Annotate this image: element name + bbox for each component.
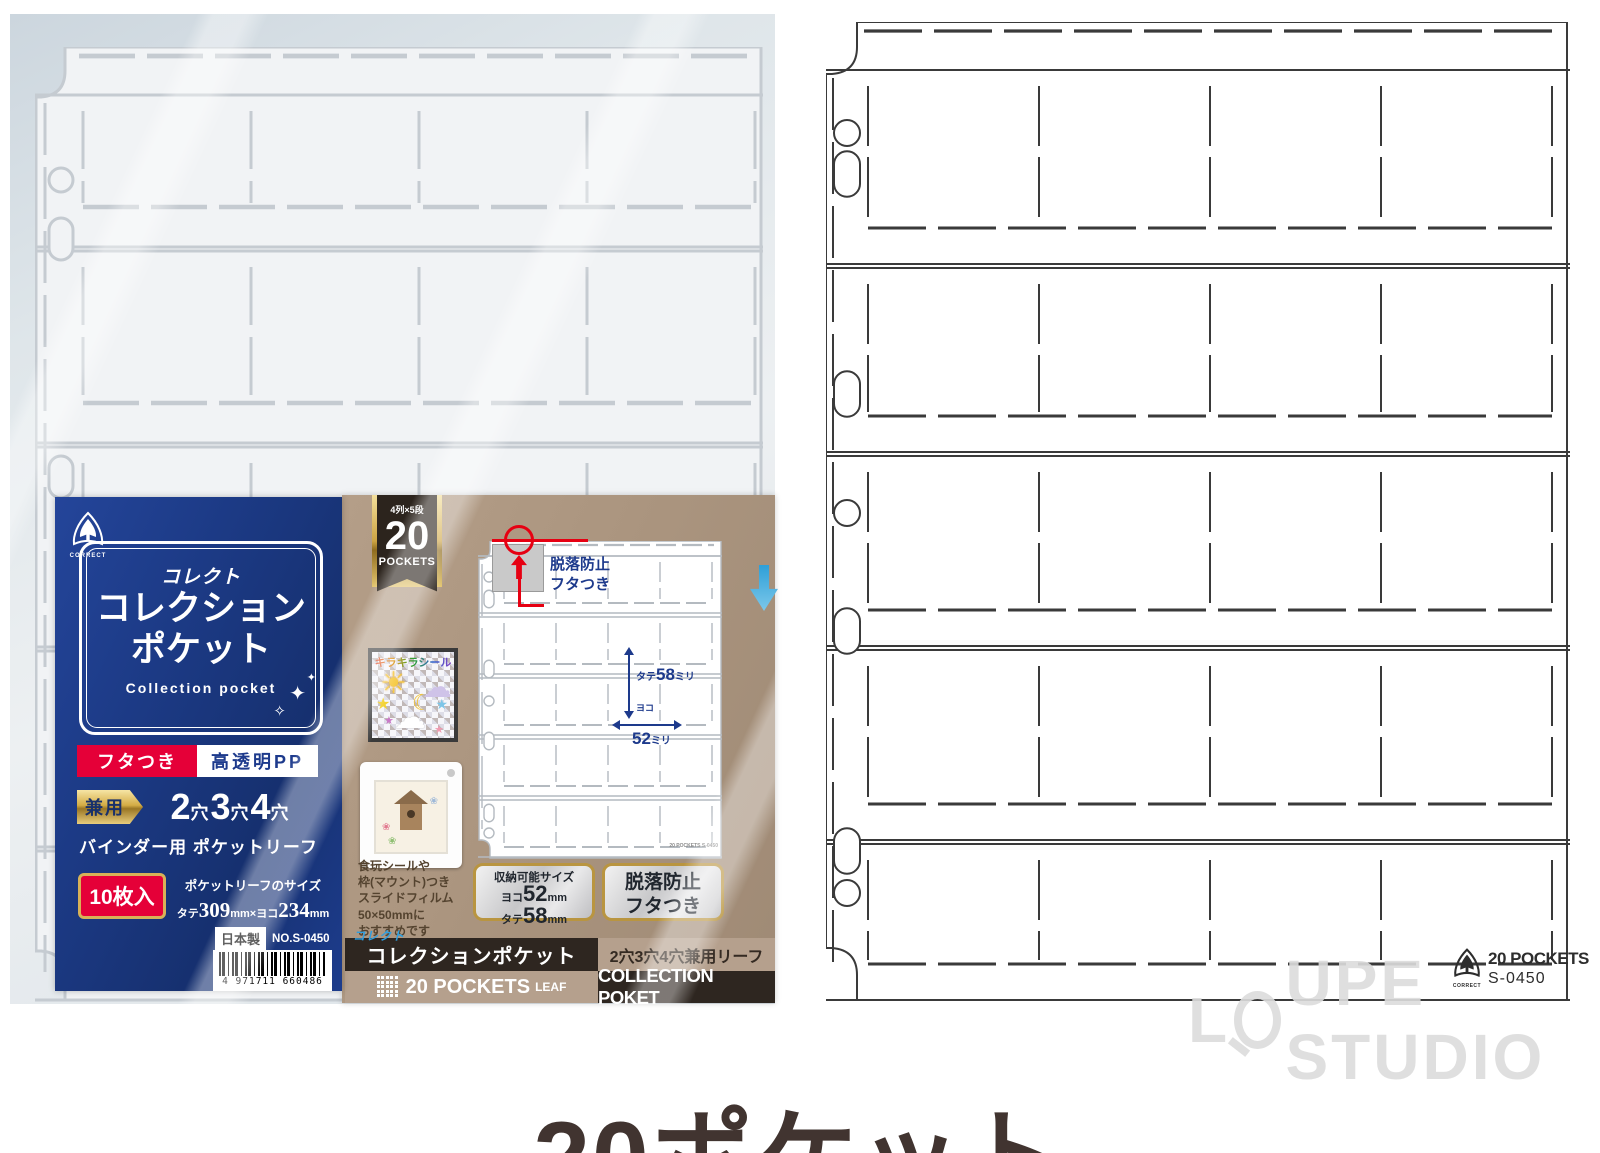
arrow-right-icon bbox=[674, 720, 682, 730]
ribbon-pockets-text: POCKETS bbox=[377, 556, 437, 568]
combo-arrow-badge: 兼用 bbox=[77, 790, 143, 824]
barcode-bars bbox=[219, 952, 326, 976]
page-caption: 20ポケット bbox=[533, 1076, 1066, 1153]
hole-count-4: 4 bbox=[251, 786, 271, 827]
product-title-en: Collection pocket bbox=[82, 680, 320, 696]
diagram-red-leader bbox=[518, 579, 521, 607]
flower-icon: ❀ bbox=[382, 822, 390, 833]
ribbon-body: 4列×5段 20 POCKETS bbox=[377, 495, 437, 607]
diagram-corner-text: 20 POCKETS S-0450 bbox=[669, 843, 718, 849]
dim-horizontal-label-top: ヨコ bbox=[636, 701, 654, 714]
dim-horizontal-label: 52ミリ bbox=[632, 729, 671, 749]
insert-arrow-icon bbox=[750, 565, 778, 611]
footer-leaf-text: LEAF bbox=[535, 980, 566, 994]
leaf-icon: ❀ bbox=[388, 836, 396, 847]
birdhouse-roof bbox=[394, 790, 428, 804]
hole-unit: 穴 bbox=[231, 803, 249, 823]
flower-icon: ❀ bbox=[430, 796, 438, 807]
hole-unit: 穴 bbox=[271, 803, 289, 823]
anti-drop-badge: 脱落防止 フタつき bbox=[602, 863, 724, 921]
footer-brand-script: コレクト bbox=[353, 927, 405, 944]
hole-count-2: 2 bbox=[170, 786, 190, 827]
hole-compatibility: 兼用 2穴3穴4穴 bbox=[77, 787, 318, 827]
slide-mount-image: ❀ ❀ ❀ bbox=[360, 762, 462, 868]
mount-artwork: ❀ ❀ ❀ bbox=[374, 780, 448, 854]
star-icon: ★ bbox=[376, 694, 390, 714]
star-icon: ★ bbox=[434, 723, 444, 736]
footer-product-bar: コレクト コレクションポケット bbox=[345, 938, 598, 971]
package-label-blue-panel: CORRECT コレクト コレクション ポケット Collection pock… bbox=[55, 497, 342, 991]
model-number: NO.S-0450 bbox=[272, 933, 330, 945]
package-label-tan-panel: 4列×5段 20 POCKETS キラキラシール ☀ ☁ ☾ ☁ ★ ★ ★ ★ bbox=[342, 495, 775, 1003]
brand-script: コレクト bbox=[82, 562, 320, 589]
star-icon: ★ bbox=[435, 696, 448, 713]
birdhouse-hole bbox=[407, 810, 415, 818]
leaf-size-caption: ポケットリーフのサイズ bbox=[173, 875, 333, 894]
sheet-count-badge: 10枚入 bbox=[78, 873, 166, 919]
arrow-down-icon bbox=[624, 711, 634, 719]
footer-english-bar: COLLECTION POKET bbox=[598, 971, 775, 1003]
mount-dot bbox=[447, 769, 455, 777]
pocket-diagram: 脱落防止 フタつき タテ58ミリ ヨコ 52ミリ 20 POCKETS S-04… bbox=[478, 541, 722, 859]
product-title-line1: コレクション bbox=[82, 588, 320, 629]
diagram-red-leader bbox=[518, 604, 544, 607]
hole-unit: 穴 bbox=[190, 803, 208, 823]
barcode-digits: 4 971711 660486 bbox=[219, 976, 326, 987]
product-subtitle: バインダー用 ポケットリーフ bbox=[55, 833, 342, 858]
holo-sticker-image: キラキラシール ☀ ☁ ☾ ☁ ★ ★ ★ ★ bbox=[368, 648, 458, 742]
hole-counts: 2穴3穴4穴 bbox=[143, 786, 318, 828]
product-title: コレクション ポケット bbox=[82, 588, 320, 670]
hole-count-3: 3 bbox=[210, 786, 230, 827]
lid-badge: フタつき bbox=[77, 745, 197, 777]
diagram-lid-label: 脱落防止 フタつき bbox=[550, 555, 610, 595]
title-frame: コレクト コレクション ポケット Collection pocket ✦ ✧ ✦ bbox=[79, 541, 323, 735]
sparkle-icon: ✦ bbox=[307, 671, 316, 684]
storable-height: タテ58mm bbox=[476, 907, 592, 929]
sparkle-icon: ✦ bbox=[289, 681, 306, 706]
dim-vertical-line bbox=[628, 653, 630, 713]
watermark-prefix: L bbox=[1188, 983, 1230, 1057]
watermark-suffix: UPE STUDIO bbox=[1285, 946, 1600, 1094]
made-in-row: 日本製 NO.S-0450 bbox=[215, 927, 330, 950]
cloud-icon: ☁ bbox=[394, 698, 426, 736]
ribbon-number: 20 bbox=[377, 516, 437, 556]
leaf-size-value: タテ309mm×ヨコ234mm bbox=[173, 898, 333, 923]
footer-pockets-text: 20 POCKETS bbox=[406, 976, 530, 999]
leaf-size: ポケットリーフのサイズ タテ309mm×ヨコ234mm bbox=[173, 875, 333, 923]
diagram-red-circle bbox=[504, 525, 534, 555]
pocket-sheet-diagram bbox=[826, 22, 1570, 1002]
pockets-ribbon: 4列×5段 20 POCKETS bbox=[372, 495, 442, 595]
product-photo: CORRECT コレクト コレクション ポケット Collection pock… bbox=[10, 14, 775, 1004]
footer-product-name: コレクションポケット bbox=[367, 940, 577, 969]
product-title-line2: ポケット bbox=[82, 629, 320, 670]
storable-size-badge: 収納可能サイズ ヨコ52mm タテ58mm bbox=[473, 863, 595, 921]
arrow-up-icon bbox=[624, 647, 634, 655]
label-footer: コレクト コレクションポケット 2穴3穴4穴兼用リーフ 20 POCKETS L… bbox=[342, 938, 775, 1003]
sparkle-icon: ✧ bbox=[273, 702, 286, 720]
watermark: L UPE STUDIO bbox=[1188, 946, 1600, 1094]
arrow-left-icon bbox=[612, 720, 620, 730]
star-icon: ★ bbox=[384, 714, 394, 727]
feature-badges: フタつき 高透明PP bbox=[77, 745, 318, 777]
barcode: 4 971711 660486 bbox=[213, 950, 332, 991]
page: CORRECT コレクト コレクション ポケット Collection pock… bbox=[0, 0, 1600, 1153]
grid-icon bbox=[377, 976, 399, 998]
pp-badge: 高透明PP bbox=[197, 745, 318, 777]
made-in-badge: 日本製 bbox=[215, 927, 266, 950]
dim-horizontal-line bbox=[618, 724, 676, 726]
loupe-icon bbox=[1234, 991, 1281, 1049]
footer-pockets-bar: 20 POCKETS LEAF bbox=[345, 971, 598, 1003]
dim-vertical-label: タテ58ミリ bbox=[636, 665, 695, 685]
